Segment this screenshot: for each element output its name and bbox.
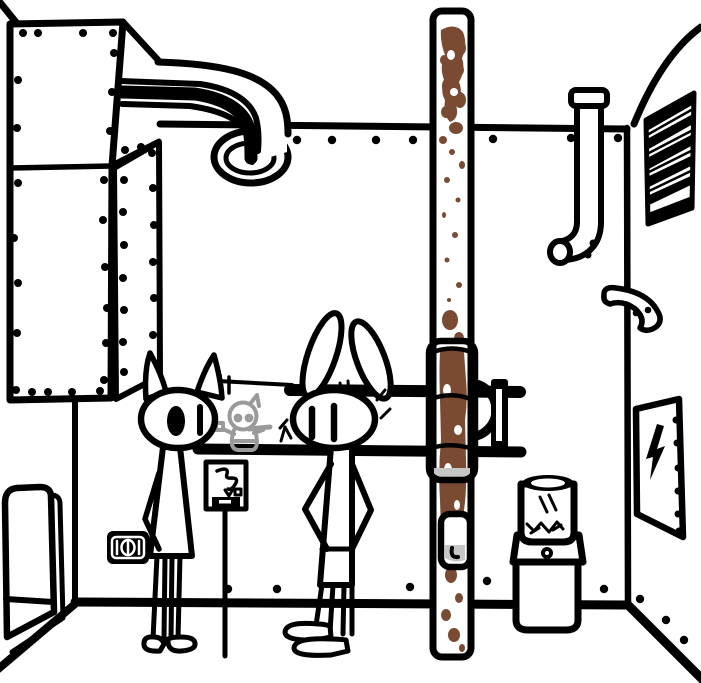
door-face [5,487,54,637]
backwall-top-edge [160,124,627,129]
scene-canvas [0,0,701,683]
right-wall-corner [627,128,628,604]
small-wall-mark [281,427,291,441]
sketch-stick [249,427,270,429]
machine-divider [11,166,112,168]
water-cooler[interactable] [513,475,583,630]
rabbit-foot-lower [294,639,348,656]
electrical-panel[interactable] [636,399,683,537]
cooler-base [516,562,578,630]
elbow-fitting-body [604,288,660,331]
cat-legs [153,556,180,639]
elbow-fitting-rivet [645,307,652,314]
handle-slot-shade [445,545,465,562]
sketch-eye-left [236,416,241,421]
cat-eye-left [167,406,185,436]
sketch-ear [250,395,259,406]
right-pipe[interactable] [550,90,607,263]
elbow-fitting[interactable] [604,288,660,331]
poster[interactable] [206,462,246,509]
right-pipe-rivet [590,240,597,247]
door-crossbar [6,599,53,602]
right-pipe-rivet [585,252,592,259]
bottle-opening [531,479,565,488]
window-end-cap-slit [496,389,502,441]
scene-root [0,0,701,683]
sketch-character[interactable] [216,395,270,450]
elbow-fitting-rivet [633,310,640,317]
cat-foot-right [168,637,195,651]
cat-ear-right [197,355,222,398]
door-panel[interactable] [5,487,63,652]
poster-label-dash [219,500,231,504]
vent[interactable] [646,93,694,224]
right-pipe-mouth [550,241,570,263]
cat-foot-left [144,637,164,651]
rabbit-torso [320,447,352,585]
outlet[interactable] [107,531,149,564]
machine-top-fold [123,22,158,60]
rusty-pipe[interactable] [429,11,475,657]
pipe-handle-slot[interactable] [441,514,470,567]
sketch-eye-right [247,416,252,421]
